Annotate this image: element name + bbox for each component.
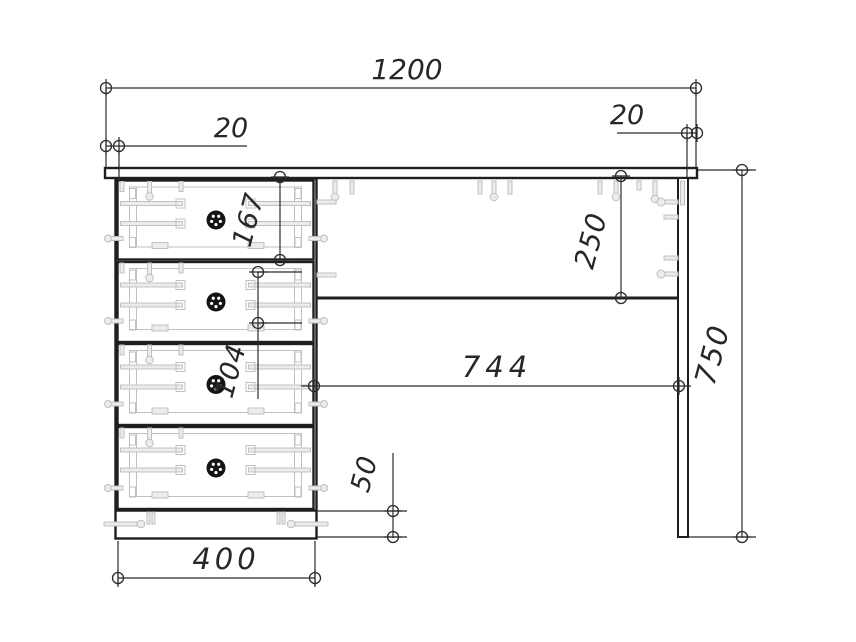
knob-dot [210,468,213,471]
drawer-knob-icon [207,211,226,230]
drawer-slide-rail [121,222,183,226]
tabletop [105,168,697,178]
screw-icon [179,428,183,438]
drawer-slide-rail [121,303,183,307]
dimension-pedestal-width: 400 [113,541,321,587]
dimension-label: 50 [345,452,384,495]
drawer-slide-rail [121,202,183,206]
screw-icon [148,263,152,275]
screw-head-icon [146,439,154,447]
dimension-label: 744 [462,350,532,384]
screw-icon [478,181,482,194]
knob-dot [217,215,220,218]
knob-dot [219,468,222,471]
cam-screw-head-icon [321,235,328,242]
cam-screw-head-icon [105,318,112,325]
screw-icon [653,181,657,196]
screw-icon [317,273,336,277]
screw-icon [664,256,678,260]
screw-icon [295,522,328,526]
knob-dot [212,463,215,466]
plinth-pin [147,512,150,524]
cam-screw-icon [111,402,123,406]
cam-screw-icon [111,237,123,241]
knob-dot [210,302,213,305]
screw-icon [681,181,685,205]
cam-screw-icon [309,486,321,490]
screw-head-icon [137,520,145,528]
cam-screw-icon [309,237,321,241]
screw-icon [104,522,137,526]
cam-screw-head-icon [321,401,328,408]
knob-dot [212,297,215,300]
knob-dot [214,305,217,308]
screw-head-icon [657,198,665,206]
bottom-fitting [248,492,264,498]
cam-screw-icon [309,402,321,406]
screw-icon [179,182,183,192]
drawer-knob-icon [207,459,226,478]
cam-screw-head-icon [321,318,328,325]
knob-dot [217,297,220,300]
screw-icon [148,345,152,357]
screw-icon [664,215,678,219]
plinth-pin [282,512,285,524]
plinth-pin [152,512,155,524]
drawer-slide-rail [121,448,183,452]
dimension-label: 20 [214,113,248,144]
cam-screw-head-icon [105,401,112,408]
dimension-label: 1200 [371,53,442,86]
dimension-overall-height: 750 [688,165,756,543]
dimension-tabletop-right-overhang: 20 [610,100,703,177]
screw-head-icon [490,193,498,201]
cam-screw-icon [111,319,123,323]
desk-technical-drawing: 1200202016710425074450400750 [0,0,856,642]
drawer-knob-icon [207,293,226,312]
cam-screw-head-icon [321,485,328,492]
dimension-label: 750 [688,320,737,388]
screw-icon [637,181,641,190]
knob-dot [219,220,222,223]
screw-icon [120,428,124,438]
screw-icon [665,272,678,276]
screw-icon [350,181,354,194]
drawer-slide-rail [249,468,311,472]
dimension-label: 250 [568,209,614,272]
screw-icon [508,181,512,194]
drawer-slide-rail [121,385,183,389]
screw-head-icon [612,193,620,201]
screw-icon [148,428,152,440]
knob-dot [214,471,217,474]
knob-dot [212,215,215,218]
side-leg-panel [678,178,688,537]
screw-icon [179,263,183,273]
screw-icon [333,181,337,194]
knob-dot [214,223,217,226]
screw-icon [317,200,336,204]
dimension-label: 400 [192,542,259,576]
knob-dot [217,463,220,466]
dimension-label: 20 [610,100,644,131]
cam-screw-icon [111,486,123,490]
screw-icon [614,181,618,194]
dimension-knee-hole-width: 744 [301,350,691,395]
screw-icon [148,182,152,194]
drawer-slide-rail [121,283,183,287]
screw-head-icon [146,274,154,282]
screw-head-icon [287,520,295,528]
bottom-fitting [152,243,168,249]
bottom-fitting [152,325,168,331]
knob-dot [219,302,222,305]
screw-head-icon [657,270,665,278]
screw-head-icon [146,356,154,364]
drawing-canvas: 1200202016710425074450400750 [0,0,856,642]
plinth-pin [277,512,280,524]
screw-icon [120,345,124,355]
screw-icon [179,345,183,355]
screw-icon [120,263,124,273]
cam-screw-head-icon [105,235,112,242]
screw-icon [120,182,124,192]
cam-screw-head-icon [105,485,112,492]
bottom-fitting [152,408,168,414]
knob-dot [210,220,213,223]
screw-head-icon [146,193,154,201]
cam-screw-icon [309,319,321,323]
drawer-slide-rail [121,365,183,369]
bottom-fitting [152,492,168,498]
drawer-slide-rail [121,468,183,472]
drawer-slide-rail [249,448,311,452]
bottom-fitting [248,408,264,414]
screw-icon [492,181,496,194]
dimension-plinth-height: 50 [317,452,407,542]
screw-icon [598,181,602,194]
screw-icon [665,200,678,204]
